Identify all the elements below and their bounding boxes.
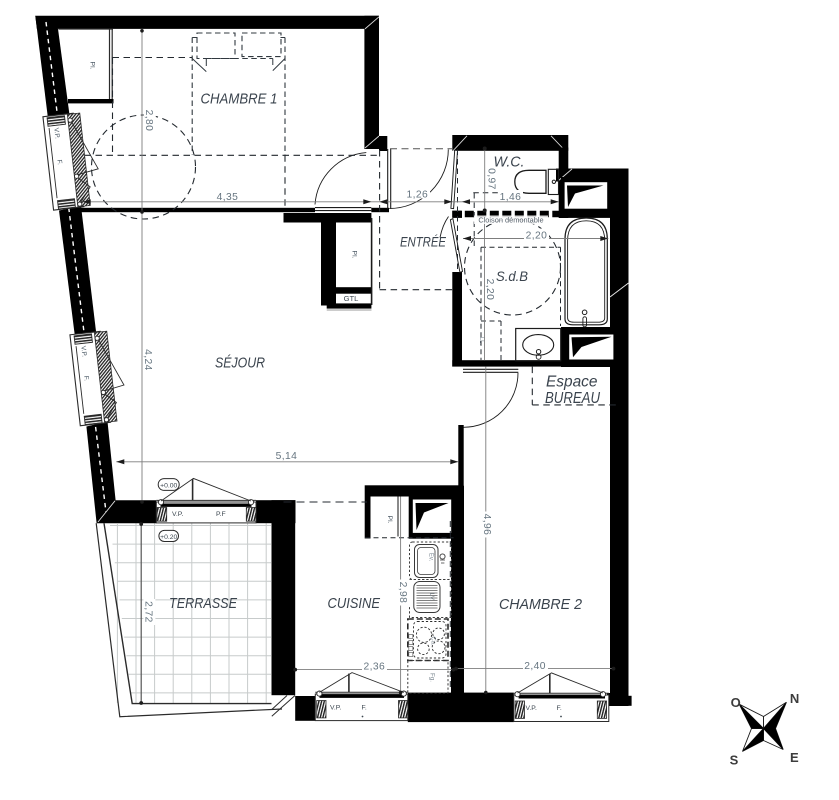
svg-text:Espace: Espace [546,374,598,391]
svg-text:LV.: LV. [428,593,434,601]
svg-text:Pl.: Pl. [89,62,96,70]
svg-text:W.C.: W.C. [494,155,525,171]
svg-text:4,96: 4,96 [481,514,492,536]
svg-text:S.d.B: S.d.B [496,269,528,284]
svg-text:Cu.: Cu. [430,636,436,646]
svg-text:5,14: 5,14 [276,451,298,462]
svg-text:Pl.: Pl. [386,516,393,524]
svg-text:F.: F. [82,375,90,381]
svg-text:V.P.: V.P. [330,705,341,712]
svg-text:Cloison démontable: Cloison démontable [478,216,543,225]
svg-text:+0.20: +0.20 [160,534,177,541]
svg-text:ENTRÉE: ENTRÉE [400,235,447,250]
svg-text:2,20: 2,20 [484,279,495,301]
svg-text:1,26: 1,26 [406,189,428,200]
svg-text:V.P.: V.P. [526,705,537,712]
svg-text:F.: F. [557,705,562,712]
svg-text:4,24: 4,24 [142,349,153,371]
svg-text:TERRASSE: TERRASSE [169,595,238,612]
svg-text:1,46: 1,46 [500,192,522,203]
svg-text:CHAMBRE 1: CHAMBRE 1 [201,91,278,107]
svg-text:F.: F. [55,159,63,165]
svg-text:2,36: 2,36 [363,661,385,672]
svg-text:BUREAU: BUREAU [545,390,601,407]
svg-text:Év.: Év. [428,553,435,562]
svg-text:SÉJOUR: SÉJOUR [215,355,265,372]
svg-text:CHAMBRE 2: CHAMBRE 2 [499,597,582,613]
svg-text:2,80: 2,80 [143,110,154,132]
svg-text:LL.: LL. [478,337,484,346]
svg-text:F.: F. [362,705,367,712]
svg-text:4,35: 4,35 [217,192,239,203]
svg-text:2,72: 2,72 [142,601,153,623]
svg-text:N: N [790,691,799,706]
svg-text:Fg.: Fg. [429,673,436,682]
svg-text:O: O [731,695,741,710]
svg-text:+0.00: +0.00 [160,482,177,489]
svg-text:V.P.: V.P. [52,127,60,139]
svg-text:Pl.: Pl. [351,251,358,259]
svg-text:2,98: 2,98 [397,582,408,604]
svg-text:2,20: 2,20 [526,230,548,241]
svg-text:E: E [790,750,799,765]
svg-text:P.F: P.F [216,511,226,518]
svg-text:0,97: 0,97 [486,168,497,190]
svg-text:S: S [730,753,739,768]
svg-text:V.P.: V.P. [79,346,87,358]
svg-text:2,40: 2,40 [524,661,546,672]
svg-text:GTL: GTL [344,294,359,303]
svg-text:V.P.: V.P. [172,511,183,518]
svg-text:CUISINE: CUISINE [328,595,381,612]
